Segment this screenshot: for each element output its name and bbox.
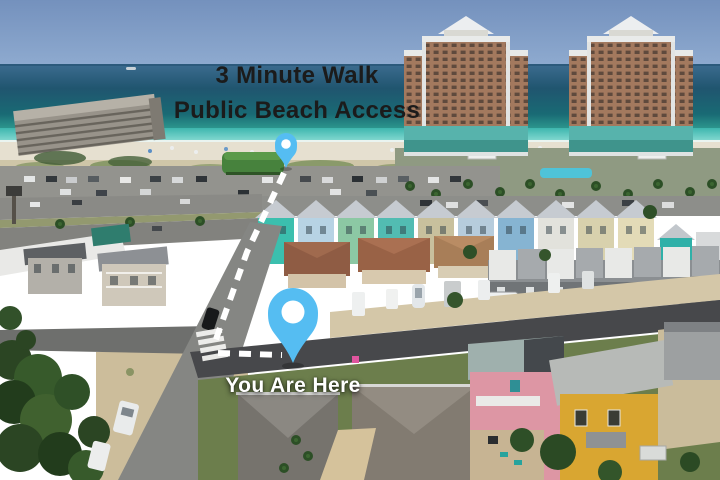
cottage-roofs xyxy=(284,236,494,288)
aerial-photo: 3 Minute Walk Public Beach Access You Ar… xyxy=(0,0,720,480)
beach-pavilion xyxy=(222,152,284,175)
pink-flag xyxy=(352,356,359,363)
headline-line2: Public Beach Access xyxy=(174,93,420,128)
condo-tower-left xyxy=(404,16,528,156)
you-are-here-label: You Are Here xyxy=(225,374,361,398)
billboard xyxy=(6,186,22,196)
headline-label: 3 Minute Walk Public Beach Access xyxy=(174,58,420,128)
boat xyxy=(126,67,136,70)
condo-tower-right xyxy=(569,16,693,156)
headline-line1: 3 Minute Walk xyxy=(174,58,420,93)
pool xyxy=(540,168,592,178)
